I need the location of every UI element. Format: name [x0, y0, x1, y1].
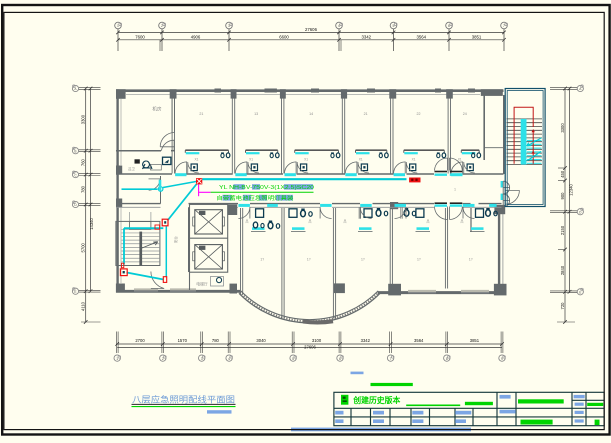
svg-text:8: 8: [446, 357, 448, 361]
svg-text:3564: 3564: [414, 338, 424, 343]
svg-text:6: 6: [448, 24, 450, 28]
svg-text:5: 5: [292, 357, 294, 361]
svg-text:6: 6: [339, 357, 341, 361]
svg-text:E: E: [74, 290, 76, 294]
svg-text:3564: 3564: [416, 34, 426, 39]
svg-text:7: 7: [503, 24, 505, 28]
svg-text:YL NH-BV-750V-3(1X2.5)SC20: YL NH-BV-750V-3(1X2.5)SC20: [219, 185, 314, 191]
svg-text:2: 2: [162, 357, 164, 361]
svg-text:1?: 1?: [417, 258, 421, 262]
svg-text:2: 2: [161, 24, 163, 28]
svg-text:八层应急照明配线平面图: 八层应急照明配线平面图: [132, 394, 235, 405]
svg-text:3: 3: [228, 24, 230, 28]
svg-text:吕: 吕: [426, 220, 429, 224]
svg-text:1?: 1?: [307, 258, 311, 262]
svg-text:22: 22: [417, 112, 421, 116]
svg-text:27606: 27606: [305, 27, 318, 32]
svg-text:5: 5: [393, 24, 395, 28]
svg-text:吕: 吕: [308, 220, 311, 224]
svg-text:14340: 14340: [89, 218, 94, 230]
svg-text:780: 780: [81, 185, 86, 193]
svg-text:X1: X1: [249, 157, 253, 161]
svg-text:760: 760: [81, 158, 86, 166]
svg-text:B: B: [74, 149, 76, 153]
svg-text:X1: X1: [304, 157, 308, 161]
svg-text:720: 720: [560, 302, 565, 310]
svg-text:3300: 3300: [560, 123, 565, 133]
svg-text:13: 13: [254, 112, 258, 116]
svg-text:创建历史版本: 创建历史版本: [352, 395, 400, 405]
svg-text:5700: 5700: [81, 242, 86, 252]
svg-text:1: 1: [116, 357, 118, 361]
svg-text:1570: 1570: [178, 338, 188, 343]
svg-text:4906: 4906: [191, 34, 201, 39]
svg-text:电梯厅: 电梯厅: [196, 282, 208, 287]
svg-text:1?: 1?: [361, 258, 365, 262]
svg-text:2700: 2700: [135, 338, 145, 343]
svg-text:吕: 吕: [343, 220, 346, 224]
svg-text:2840: 2840: [560, 265, 565, 275]
svg-text:吕: 吕: [245, 220, 248, 224]
svg-text:12340: 12340: [569, 184, 574, 196]
svg-text:4110: 4110: [81, 301, 86, 311]
svg-text:21: 21: [199, 112, 203, 116]
svg-text:X1: X1: [412, 157, 416, 161]
svg-text:3851: 3851: [472, 34, 482, 39]
svg-text:3342: 3342: [361, 34, 371, 39]
svg-text:780: 780: [212, 338, 220, 343]
svg-text:3100: 3100: [312, 338, 322, 343]
svg-text:1: 1: [117, 24, 119, 28]
svg-text:阳台: 阳台: [173, 236, 178, 242]
svg-text:1: 1: [454, 188, 456, 192]
svg-text:4: 4: [228, 357, 230, 361]
svg-text:E: E: [579, 291, 581, 295]
svg-text:3300: 3300: [81, 114, 86, 124]
svg-text:X1: X1: [458, 157, 462, 161]
svg-text:1?: 1?: [260, 258, 264, 262]
svg-text:900: 900: [560, 192, 565, 200]
svg-text:机房: 机房: [152, 106, 162, 113]
svg-text:21: 21: [364, 112, 368, 116]
svg-text:6600: 6600: [279, 34, 289, 39]
svg-text:7600: 7600: [135, 34, 145, 39]
svg-text:X1: X1: [194, 157, 198, 161]
svg-text:450: 450: [560, 170, 565, 178]
svg-text:3851: 3851: [470, 338, 480, 343]
svg-text:2150: 2150: [560, 225, 565, 235]
svg-text:9: 9: [501, 357, 503, 361]
svg-text:1?: 1?: [469, 258, 473, 262]
svg-text:吕卫: 吕卫: [128, 167, 135, 171]
svg-text:吕: 吕: [460, 220, 463, 224]
svg-text:24: 24: [463, 112, 467, 116]
svg-text:27606: 27606: [304, 344, 316, 349]
svg-text:自带蓄电池应急照明灯具装: 自带蓄电池应急照明灯具装: [216, 194, 293, 202]
svg-text:14: 14: [309, 112, 313, 116]
svg-text:3040: 3040: [256, 338, 266, 343]
svg-text:3342: 3342: [361, 338, 371, 343]
svg-text:X1: X1: [359, 157, 363, 161]
svg-text:7: 7: [390, 357, 392, 361]
svg-text:3: 3: [201, 357, 203, 361]
svg-text:4: 4: [338, 24, 340, 28]
